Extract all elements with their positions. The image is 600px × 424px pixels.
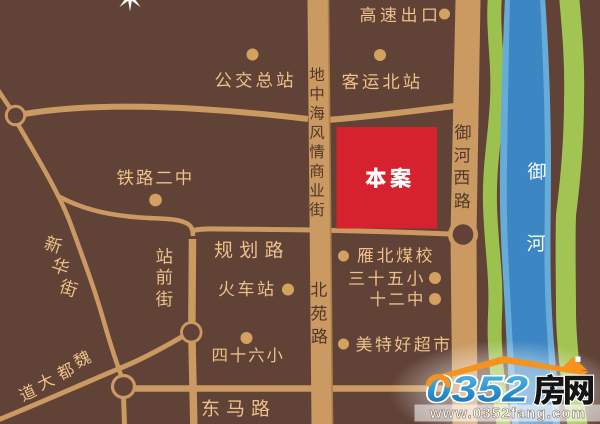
svg-text:www.0352fang.com: www.0352fang.com [429,405,586,422]
